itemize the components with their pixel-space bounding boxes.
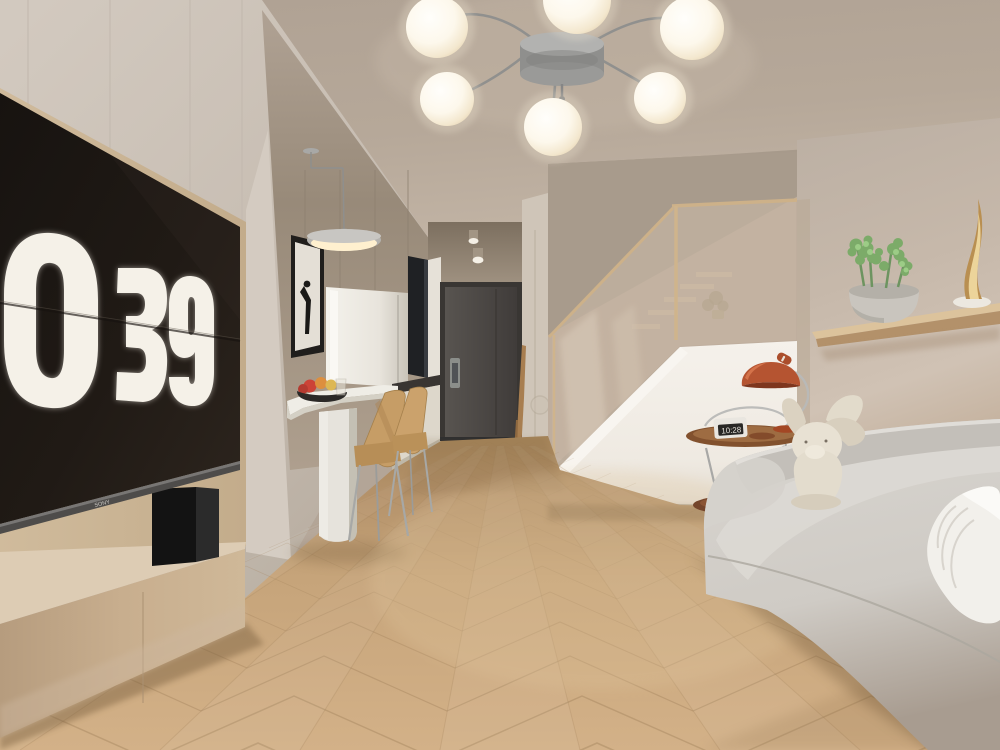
svg-text:10:28: 10:28 [721, 425, 742, 435]
